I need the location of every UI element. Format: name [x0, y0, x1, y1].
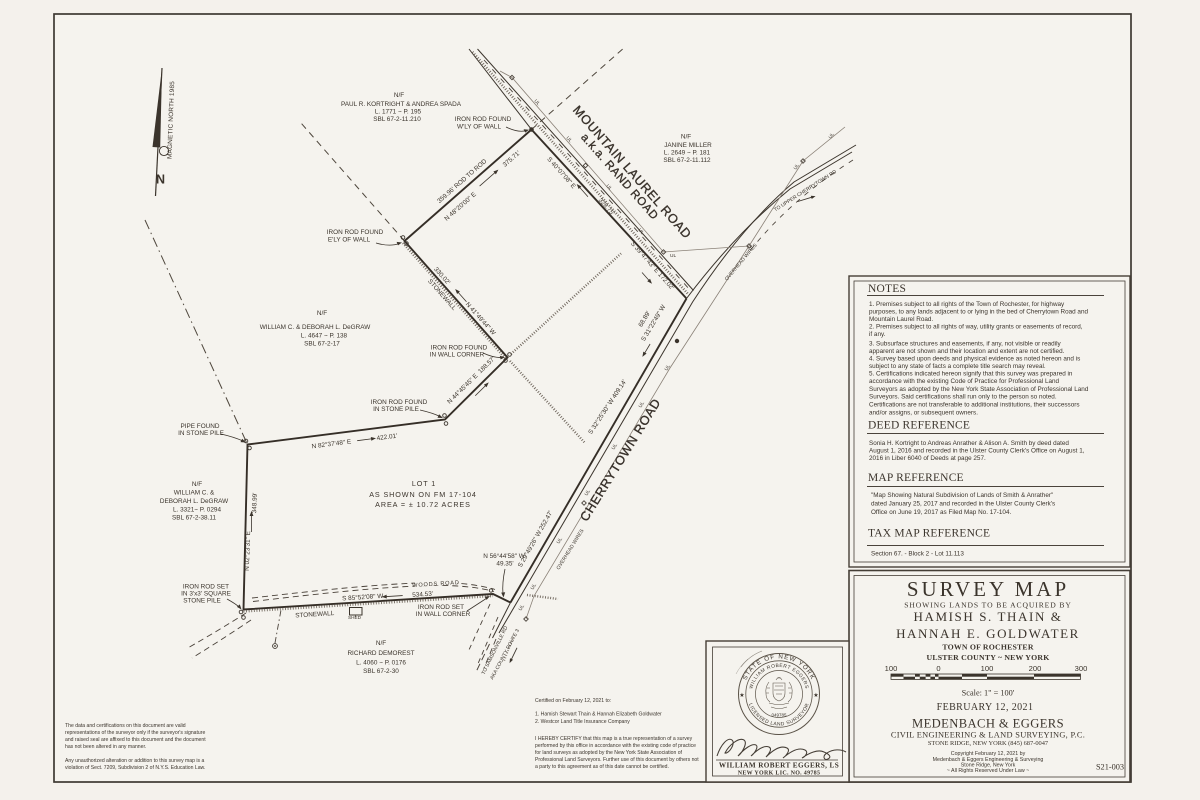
svg-text:534.53': 534.53': [412, 591, 433, 599]
svg-text:L. 4060 ~ P. 0176: L. 4060 ~ P. 0176: [356, 660, 406, 667]
svg-text:WILLIAM C. &: WILLIAM C. &: [174, 490, 215, 497]
svg-text:Surveyors as adopted by the Ne: Surveyors as adopted by the New York Sta…: [869, 386, 1089, 393]
svg-text:has not been altered in any ma: has not been altered in any manner.: [65, 744, 146, 750]
svg-text:E'LY OF WALL: E'LY OF WALL: [328, 237, 371, 244]
svg-text:N: N: [156, 173, 165, 187]
svg-text:for land surveys as adopted by: for land surveys as adopted by the New Y…: [535, 750, 683, 756]
svg-text:representations of the surveyo: representations of the surveyor only if …: [65, 730, 205, 736]
svg-text:performed by this office in ac: performed by this office in accordance w…: [535, 743, 696, 749]
svg-text:Professional Land Surveyors.: Professional Land Surveyors. Further use…: [535, 757, 699, 763]
svg-text:IN STONE PILE: IN STONE PILE: [178, 430, 224, 437]
svg-text:Any unauthorized alteration or: Any unauthorized alteration or addition …: [65, 758, 204, 764]
svg-text:violation of Sect. 7209, Subdi: violation of Sect. 7209, Subdivision 2 o…: [65, 765, 205, 771]
svg-text:W'LY OF WALL: W'LY OF WALL: [457, 124, 502, 131]
svg-text:"Map Showing Natural Subdivisi: "Map Showing Natural Subdivision of Land…: [871, 492, 1053, 499]
svg-text:NOTES: NOTES: [868, 283, 906, 295]
svg-text:HANNAH E. GOLDWATER: HANNAH E. GOLDWATER: [896, 626, 1080, 641]
svg-text:LOT 1: LOT 1: [412, 479, 436, 488]
svg-text:AREA = ± 10.72 ACRES: AREA = ± 10.72 ACRES: [375, 500, 471, 509]
svg-text:FEBRUARY 12, 2021: FEBRUARY 12, 2021: [937, 702, 1034, 713]
svg-text:RICHARD DEMOREST: RICHARD DEMOREST: [347, 650, 414, 657]
svg-text:N/F: N/F: [681, 134, 691, 141]
svg-text:N/F: N/F: [394, 92, 404, 99]
svg-text:2016 in Liber 6040 of Deeds at: 2016 in Liber 6040 of Deeds at page 257.: [869, 455, 986, 462]
svg-text:WILLIAM ROBERT EGGERS, LS: WILLIAM ROBERT EGGERS, LS: [719, 762, 839, 770]
svg-text:N/F: N/F: [192, 481, 202, 488]
svg-text:The data and certifications on: The data and certifications on this docu…: [65, 723, 186, 729]
svg-text:JANINE MILLER: JANINE MILLER: [664, 142, 712, 149]
svg-text:~ All Rights Reserved Under La: ~ All Rights Reserved Under Law ~: [947, 768, 1029, 774]
svg-text:L. 2649 ~ P. 181: L. 2649 ~ P. 181: [664, 150, 711, 157]
svg-text:L. 4647 ~ P. 138: L. 4647 ~ P. 138: [301, 333, 348, 340]
svg-text:ULSTER COUNTY ~ NEW YORK: ULSTER COUNTY ~ NEW YORK: [927, 653, 1050, 662]
svg-text:49.35': 49.35': [496, 561, 513, 568]
svg-text:AS SHOWN ON FM 17-104: AS SHOWN ON FM 17-104: [369, 490, 477, 499]
svg-text:Mountain Laurel Road.: Mountain Laurel Road.: [869, 316, 933, 323]
svg-text:3. Subsurface structures and: 3. Subsurface structures and easements, …: [869, 341, 1062, 348]
svg-text:1. Hamish Stewart Thain & Hann: 1. Hamish Stewart Thain & Hannah Elizabe…: [535, 712, 662, 718]
svg-text:IRON ROD SET: IRON ROD SET: [418, 604, 464, 611]
svg-text:348.99': 348.99': [251, 492, 259, 513]
svg-text:CIVIL ENGINEERING & LAND SURVE: CIVIL ENGINEERING & LAND SURVEYING, P.C.: [891, 731, 1085, 740]
svg-text:IN WALL CORNER: IN WALL CORNER: [416, 611, 471, 618]
svg-text:N 56°44'58" W: N 56°44'58" W: [483, 552, 526, 560]
svg-text:Scale: 1" = 100': Scale: 1" = 100': [962, 689, 1015, 698]
svg-text:and/or assigns, or subsequent: and/or assigns, or subsequent owners.: [869, 410, 978, 417]
svg-text:100: 100: [885, 664, 898, 673]
svg-text:IRON ROD FOUND: IRON ROD FOUND: [327, 229, 384, 236]
svg-text:300: 300: [1075, 664, 1088, 673]
svg-text:and raised seal are affixed to: and raised seal are affixed to this docu…: [65, 737, 206, 743]
svg-text:IN STONE PILE: IN STONE PILE: [373, 406, 419, 413]
svg-text:Section 67. - Block 2 - Lot 11: Section 67. - Block 2 - Lot 11.113: [871, 551, 964, 558]
svg-text:DEED REFERENCE: DEED REFERENCE: [868, 420, 970, 432]
svg-text:N/F: N/F: [317, 310, 327, 317]
svg-text:IRON ROD FOUND: IRON ROD FOUND: [371, 399, 428, 406]
svg-text:IN 3'x3' SQUARE: IN 3'x3' SQUARE: [181, 591, 231, 598]
svg-text:★: ★: [813, 692, 818, 699]
svg-text:N/F: N/F: [376, 640, 386, 647]
svg-text:SBL 67-2-11.210: SBL 67-2-11.210: [373, 116, 421, 123]
svg-text:SBL 67-2-17: SBL 67-2-17: [304, 341, 340, 348]
svg-text:SBL 67-2-30: SBL 67-2-30: [363, 668, 399, 675]
svg-text:2. Westcor Land Title Insuranc: 2. Westcor Land Title Insurance Company: [535, 719, 630, 725]
svg-text:TAX MAP REFERENCE: TAX MAP REFERENCE: [868, 528, 990, 540]
svg-text:2. Premises subject to all ri: 2. Premises subject to all rights of way…: [869, 324, 1083, 331]
svg-text:L. 1771 ~ P. 195: L. 1771 ~ P. 195: [375, 109, 422, 116]
svg-text:L. 3321~ P. 0294: L. 3321~ P. 0294: [173, 507, 221, 514]
svg-text:Office on June 19, 2017 as Fil: Office on June 19, 2017 as Filed Map No.…: [871, 509, 1011, 516]
svg-text:5. Certifications indicated he: 5. Certifications indicated hereon signi…: [869, 371, 1073, 378]
svg-text:IRON ROD FOUND: IRON ROD FOUND: [455, 116, 512, 123]
svg-text:TOWN OF ROCHESTER: TOWN OF ROCHESTER: [942, 643, 1034, 652]
svg-text:4. Survey based upon deeds an: 4. Survey based upon deeds and physical …: [869, 356, 1080, 363]
svg-text:accordance with the existing C: accordance with the existing Code of Pra…: [869, 378, 1060, 385]
svg-text:STONE PILE: STONE PILE: [183, 598, 221, 605]
svg-text:Certified on February 12, 2021: Certified on February 12, 2021 to:: [535, 698, 611, 704]
svg-text:MAP REFERENCE: MAP REFERENCE: [868, 472, 964, 484]
svg-text:N 02°23'31" E: N 02°23'31" E: [243, 531, 252, 571]
svg-text:IN WALL CORNER: IN WALL CORNER: [430, 352, 485, 359]
svg-text:PIPE FOUND: PIPE FOUND: [180, 423, 219, 430]
svg-text:SHED: SHED: [348, 615, 362, 620]
svg-text:NEW YORK LIC. NO. 49785: NEW YORK LIC. NO. 49785: [738, 771, 821, 777]
svg-text:I HEREBY CERTIFY that this map: I HEREBY CERTIFY that this map is a true…: [535, 736, 693, 742]
svg-text:August 1, 2016 and recorded in: August 1, 2016 and recorded in the Ulste…: [869, 448, 1085, 455]
svg-text:200: 200: [1029, 664, 1042, 673]
svg-text:DEBORAH L. DeGRAW: DEBORAH L. DeGRAW: [160, 498, 229, 505]
svg-text:Surveyors. Said certifications: Surveyors. Said certifications shall run…: [869, 394, 1057, 401]
svg-text:SURVEY MAP: SURVEY MAP: [907, 577, 1069, 601]
svg-text:WILLIAM C. & DEBORAH L. DeGRAW: WILLIAM C. & DEBORAH L. DeGRAW: [260, 324, 372, 331]
svg-text:IRON ROD FOUND: IRON ROD FOUND: [431, 345, 488, 352]
svg-text:a party to this agreement as o: a party to this agreement as of this dat…: [535, 764, 669, 770]
svg-text:STONE RIDGE, NEW YORK (845): STONE RIDGE, NEW YORK (845) 687-0047: [928, 740, 1049, 747]
svg-text:Sonia H. Kortright to Andreas: Sonia H. Kortright to Andreas Anrather &…: [869, 440, 1069, 447]
svg-text:0: 0: [936, 664, 940, 673]
svg-text:HAMISH S. THAIN &: HAMISH S. THAIN &: [913, 609, 1062, 624]
svg-text:SBL 67-2-11.112: SBL 67-2-11.112: [663, 157, 711, 164]
svg-text:Certifications are not transfe: Certifications are not transferable to a…: [869, 402, 1080, 409]
svg-text:1. Premises subject to all ri: 1. Premises subject to all rights of the…: [869, 301, 1065, 308]
svg-text:purposes, to any lands adjacen: purposes, to any lands adjacent to or ly…: [869, 309, 1088, 316]
svg-text:apparent are not shown and the: apparent are not shown and their locatio…: [869, 348, 1065, 355]
svg-text:S21-003: S21-003: [1096, 763, 1124, 772]
svg-text:dated January 25, 2017 and rec: dated January 25, 2017 and recorded in t…: [871, 501, 1055, 508]
svg-text:if any.: if any.: [869, 331, 886, 338]
svg-text:★: ★: [739, 692, 744, 699]
svg-text:100: 100: [981, 664, 994, 673]
svg-text:IRON ROD SET: IRON ROD SET: [183, 584, 229, 591]
svg-text:UL: UL: [670, 253, 676, 259]
svg-text:PAUL R. KORTRIGHT & ANDREA SPA: PAUL R. KORTRIGHT & ANDREA SPADA: [341, 101, 462, 108]
svg-text:049785: 049785: [771, 713, 787, 718]
svg-text:SBL 67-2-38.11: SBL 67-2-38.11: [172, 515, 216, 522]
svg-text:subject to any state of facts: subject to any state of facts a complete…: [869, 363, 1046, 370]
svg-text:MEDENBACH & EGGERS: MEDENBACH & EGGERS: [912, 717, 1064, 731]
